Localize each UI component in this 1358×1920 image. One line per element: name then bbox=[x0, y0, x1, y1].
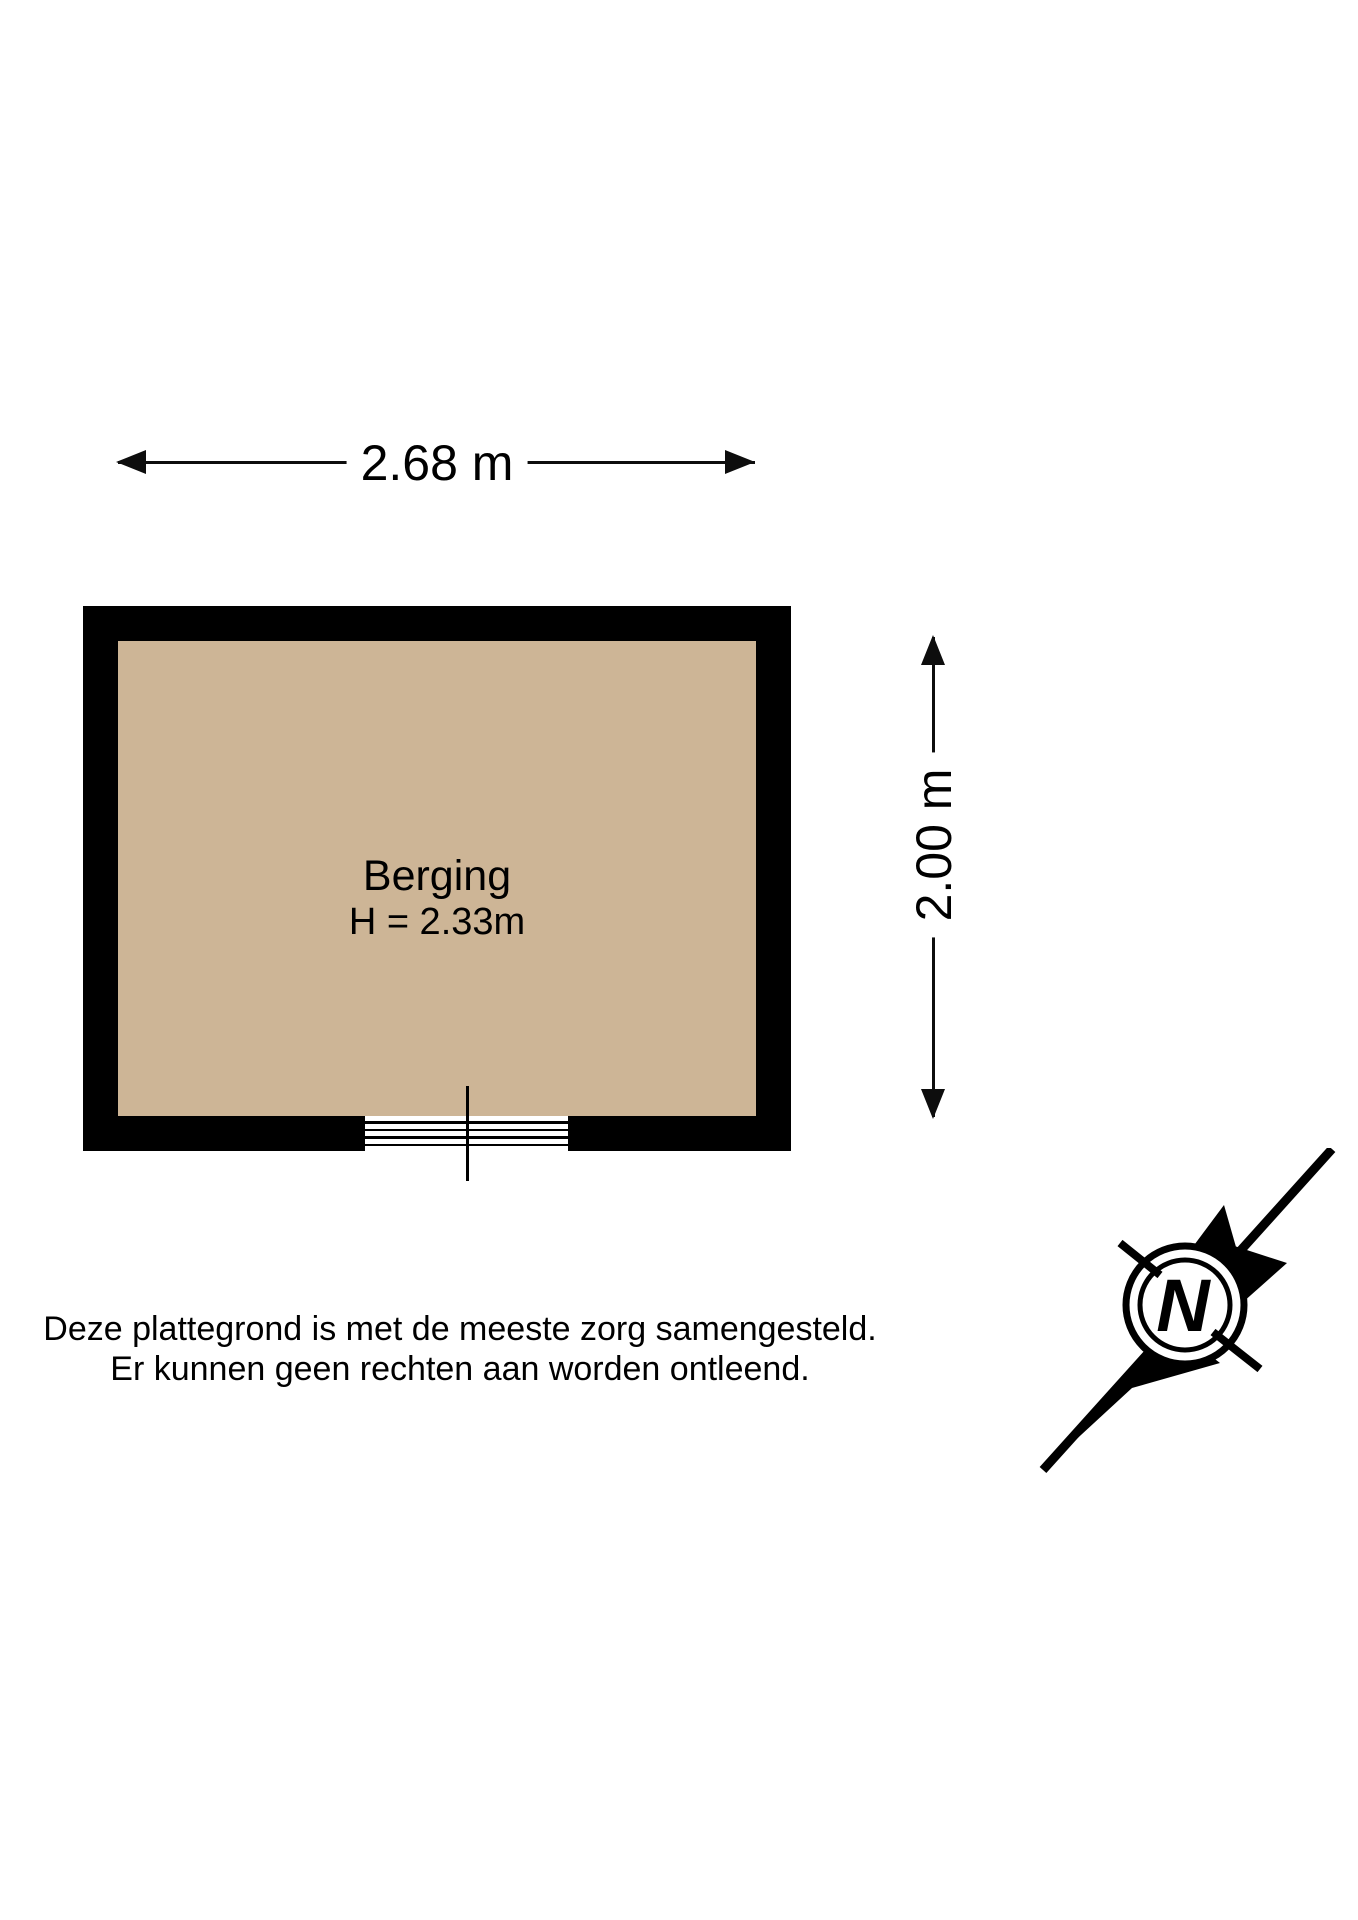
disclaimer: Deze plattegrond is met de meeste zorg s… bbox=[20, 1309, 900, 1389]
disclaimer-line-1: Deze plattegrond is met de meeste zorg s… bbox=[20, 1309, 900, 1349]
room-labels: Berging H = 2.33m bbox=[83, 852, 791, 945]
height-dimension-label: 2.00 m bbox=[905, 753, 963, 938]
arrowhead-down-icon bbox=[921, 1089, 945, 1119]
room-ceiling-height-label: H = 2.33m bbox=[83, 901, 791, 945]
arrowhead-up-icon bbox=[921, 635, 945, 665]
north-compass-icon: N bbox=[1020, 1148, 1358, 1530]
arrowhead-right-icon bbox=[725, 450, 755, 474]
arrowhead-left-icon bbox=[116, 450, 146, 474]
compass-north-letter: N bbox=[1156, 1264, 1211, 1347]
width-dimension-label: 2.68 m bbox=[347, 434, 528, 492]
room-name-label: Berging bbox=[83, 852, 791, 901]
floorplan-page: 2.68 m Berging H = 2.33m 2.00 m Deze pla… bbox=[0, 0, 1358, 1920]
door-swing-line bbox=[466, 1086, 469, 1181]
disclaimer-line-2: Er kunnen geen rechten aan worden ontlee… bbox=[20, 1349, 900, 1389]
